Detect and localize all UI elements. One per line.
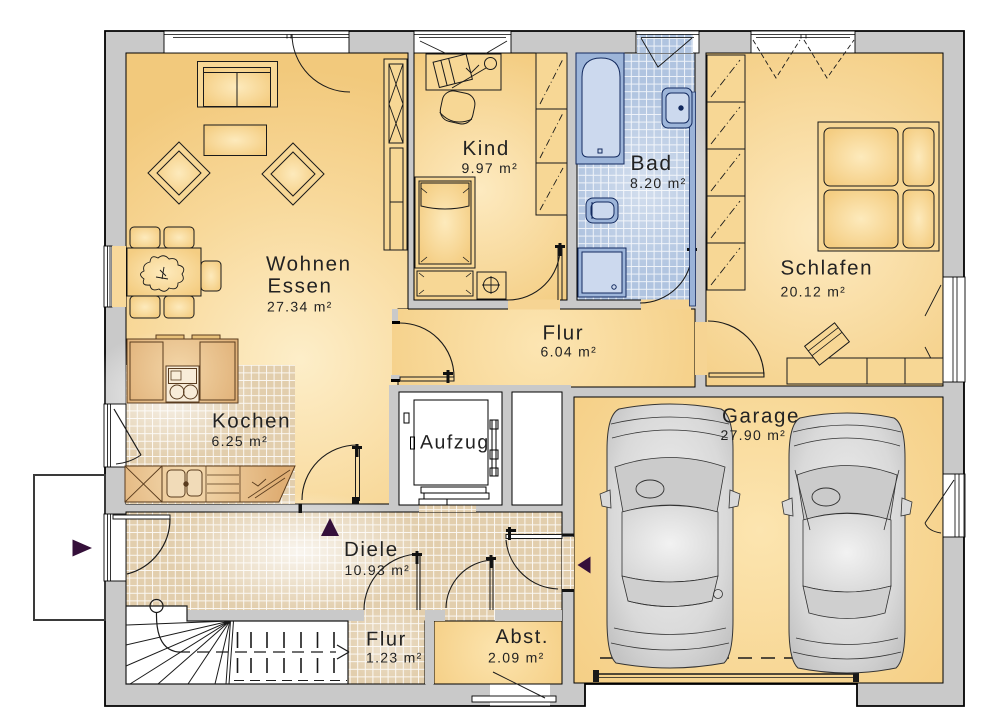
svg-text:6.25 m²: 6.25 m² <box>212 433 269 449</box>
svg-text:10.93 m²: 10.93 m² <box>345 562 411 578</box>
svg-text:Flur: Flur <box>366 629 407 651</box>
svg-text:Schlafen: Schlafen <box>781 257 874 280</box>
svg-text:8.20 m²: 8.20 m² <box>630 175 687 191</box>
svg-text:Wohnen: Wohnen <box>266 253 352 276</box>
svg-text:6.04 m²: 6.04 m² <box>541 344 598 360</box>
svg-text:27.34 m²: 27.34 m² <box>267 299 333 315</box>
svg-text:Bad: Bad <box>631 152 673 175</box>
svg-text:Garage: Garage <box>722 405 800 428</box>
svg-text:Essen: Essen <box>268 275 333 298</box>
svg-text:Kind: Kind <box>463 137 510 160</box>
svg-text:Diele: Diele <box>344 538 399 561</box>
svg-text:27.90 m²: 27.90 m² <box>721 427 787 443</box>
svg-text:1.23 m²: 1.23 m² <box>366 650 423 666</box>
svg-text:Aufzug: Aufzug <box>420 432 490 454</box>
svg-text:Flur: Flur <box>543 322 585 345</box>
svg-text:Kochen: Kochen <box>212 410 291 433</box>
svg-text:9.97 m²: 9.97 m² <box>462 160 519 176</box>
svg-text:20.12 m²: 20.12 m² <box>781 284 847 300</box>
svg-text:Abst.: Abst. <box>496 626 550 648</box>
svg-text:2.09 m²: 2.09 m² <box>488 650 545 666</box>
